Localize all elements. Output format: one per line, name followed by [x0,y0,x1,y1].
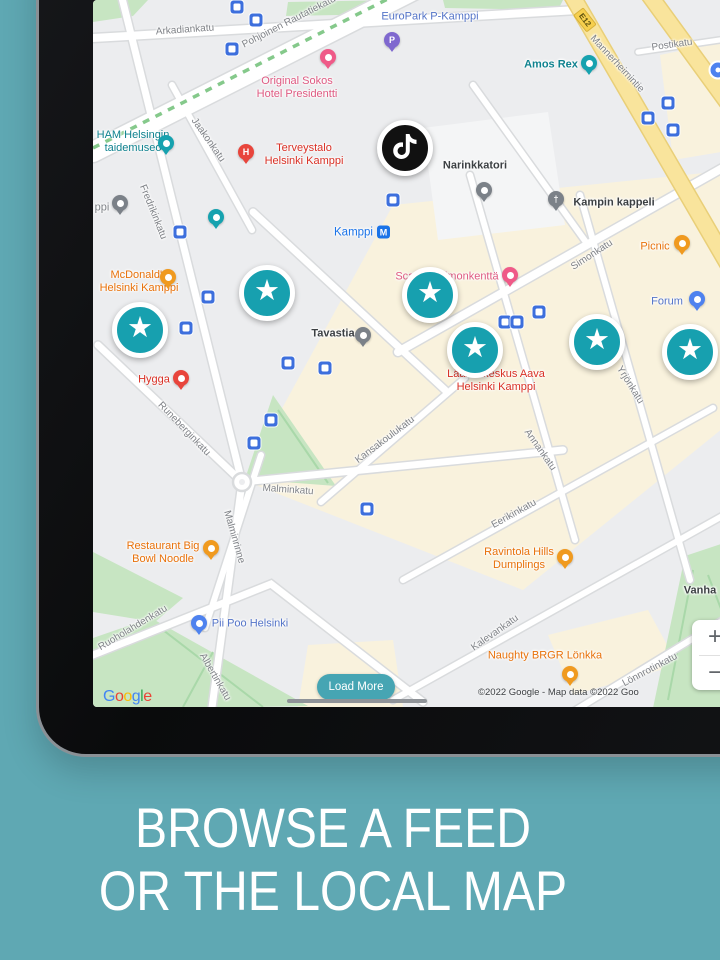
marker-hospital[interactable]: H [238,144,254,160]
street-label-arkadiankatu: Arkadiankatu [155,22,214,37]
poi-label-forum: Forum [651,296,683,309]
transit-stop-icon[interactable] [248,437,261,450]
transit-stop-icon[interactable] [319,362,332,375]
star-marker[interactable]: ★ [402,267,458,323]
load-more-button[interactable]: Load More [317,674,395,700]
tiktok-pin[interactable] [377,120,433,176]
marker-food[interactable] [674,235,690,251]
poi-label-tavastia: Tavastia [311,328,354,341]
street-label-yrj-nkatu: Yrjönkatu [614,364,646,406]
poi-label-picnic: Picnic [640,241,669,254]
transit-stop-icon[interactable] [511,316,524,329]
marker-place[interactable] [355,327,371,343]
map-attribution: ©2022 Google - Map data ©2022 Goo [478,687,720,698]
marker-hotel[interactable] [320,49,336,65]
tablet-frame: Kamppi M E12 ArkadiankatuPohjoinen Rauta… [36,0,720,757]
marker-place[interactable] [476,182,492,198]
marker-attraction[interactable] [581,55,597,71]
marker-food[interactable] [562,666,578,682]
marker-attraction[interactable] [158,135,174,151]
marker-medical[interactable] [173,370,189,386]
google-logo[interactable]: Google [103,688,152,706]
google-logo-letter: G [103,688,115,705]
street-label-jaakonkatu: Jaakonkatu [189,116,227,164]
transit-stop-icon[interactable] [533,306,546,319]
zoom-out-button[interactable]: − [692,656,720,691]
poi-label-hygga: Hygga [138,374,170,387]
star-marker[interactable]: ★ [569,314,625,370]
transit-stop-icon[interactable] [226,43,239,56]
transit-stop-icon[interactable] [667,124,680,137]
app-store-screenshot: { "scene": {"background": "#5fa8b3"}, "c… [0,0,720,960]
metro-station-name: Kamppi [334,226,373,238]
star-marker[interactable]: ★ [239,265,295,321]
street-label-kalevankatu: Kalevankatu [469,613,520,654]
marker-shopping[interactable] [689,291,705,307]
transit-stop-icon[interactable] [387,194,400,207]
tiktok-icon [393,134,417,162]
transit-stop-icon[interactable] [361,503,374,516]
caption: BROWSE A FEED OR THE LOCAL MAP [47,796,620,922]
transit-stop-icon[interactable] [231,1,244,14]
transit-stop-icon[interactable] [180,322,193,335]
marker-parking[interactable]: P [384,32,400,48]
caption-line-1: BROWSE A FEED [47,796,620,859]
transit-stop-icon[interactable] [265,414,278,427]
star-marker[interactable]: ★ [112,302,168,358]
marker-attraction[interactable] [208,209,224,225]
transit-stop-icon[interactable] [174,226,187,239]
poi-dot-icon[interactable] [709,61,720,80]
home-indicator[interactable] [287,699,427,703]
poi-label-narinkkatori: Narinkkatori [443,160,507,173]
marker-food[interactable] [557,549,573,565]
transit-stop-icon[interactable] [282,357,295,370]
street-label-malminrinne: Malminrinne [221,509,247,564]
street-label-kansakoulukatu: Kansakoulukatu [353,414,416,466]
street-label-malminkatu: Malminkatu [262,483,314,498]
street-label-simonkatu: Simonkatu [569,238,615,273]
poi-label-amos-rex: Amos Rex [524,59,578,72]
star-marker[interactable]: ★ [662,324,718,380]
metro-icon: M [377,226,390,239]
marker-place[interactable] [112,195,128,211]
poi-label-vanha: Vanha [684,585,716,598]
street-label-l-nnrotinkatu: Lönnrotinkatu [621,651,680,689]
street-label-postikatu: Postikatu [651,37,693,54]
marker-food[interactable] [160,269,176,285]
caption-line-2: OR THE LOCAL MAP [47,859,620,922]
street-label-eerikinkatu: Eerikinkatu [490,497,539,531]
street-label-runeberginkatu: Runeberginkatu [156,400,213,458]
poi-label-kampin-kappeli: Kampin kappeli [573,197,654,210]
poi-label-restaurant-big-bowl-noodle: Restaurant BigBowl Noodle [127,540,200,566]
street-label-annankatu: Annankatu [522,427,558,472]
transit-stop-icon[interactable] [250,14,263,27]
marker-hotel[interactable] [502,267,518,283]
poi-label-original-sokos-hotel-presidentti: Original SokosHotel Presidentti [257,75,338,101]
zoom-controls: + − [692,620,720,690]
marker-food[interactable] [203,540,219,556]
marker-church[interactable]: † [548,191,564,207]
poi-label-pii-poo-helsinki: Pii Poo Helsinki [212,618,288,631]
poi-label-europark-p-kamppi: EuroPark P-Kamppi [381,11,478,24]
map-overlays: Kamppi M E12 ArkadiankatuPohjoinen Rauta… [93,0,720,707]
transit-stop-icon[interactable] [202,291,215,304]
transit-stop-icon[interactable] [642,112,655,125]
transit-stop-icon[interactable] [662,97,675,110]
street-label-albertinkatu: Albertinkatu [197,651,233,702]
street-label-ruoholahdenkatu: Ruoholahdenkatu [97,603,170,653]
zoom-in-button[interactable]: + [692,620,720,655]
poi-label-ppi: ppi [95,202,110,215]
poi-label-naughty-brgr-l-nkka: Naughty BRGR Lönkka [488,650,602,663]
google-logo-letter: e [143,688,151,705]
route-e12-badge: E12 [573,7,597,33]
google-logo-letter: o [123,688,131,705]
poi-label-terveystalo-helsinki-kamppi: TerveystaloHelsinki Kamppi [265,142,344,168]
map-canvas[interactable]: Kamppi M E12 ArkadiankatuPohjoinen Rauta… [93,0,720,707]
street-label-fredrikinkatu: Fredrikinkatu [137,183,169,241]
poi-label-ravintola-hills-dumplings: Ravintola HillsDumplings [484,546,554,572]
metro-station-label: Kamppi M [334,226,390,239]
google-logo-letter: g [132,688,140,705]
star-marker[interactable]: ★ [447,322,503,378]
marker-shopping[interactable] [191,615,207,631]
